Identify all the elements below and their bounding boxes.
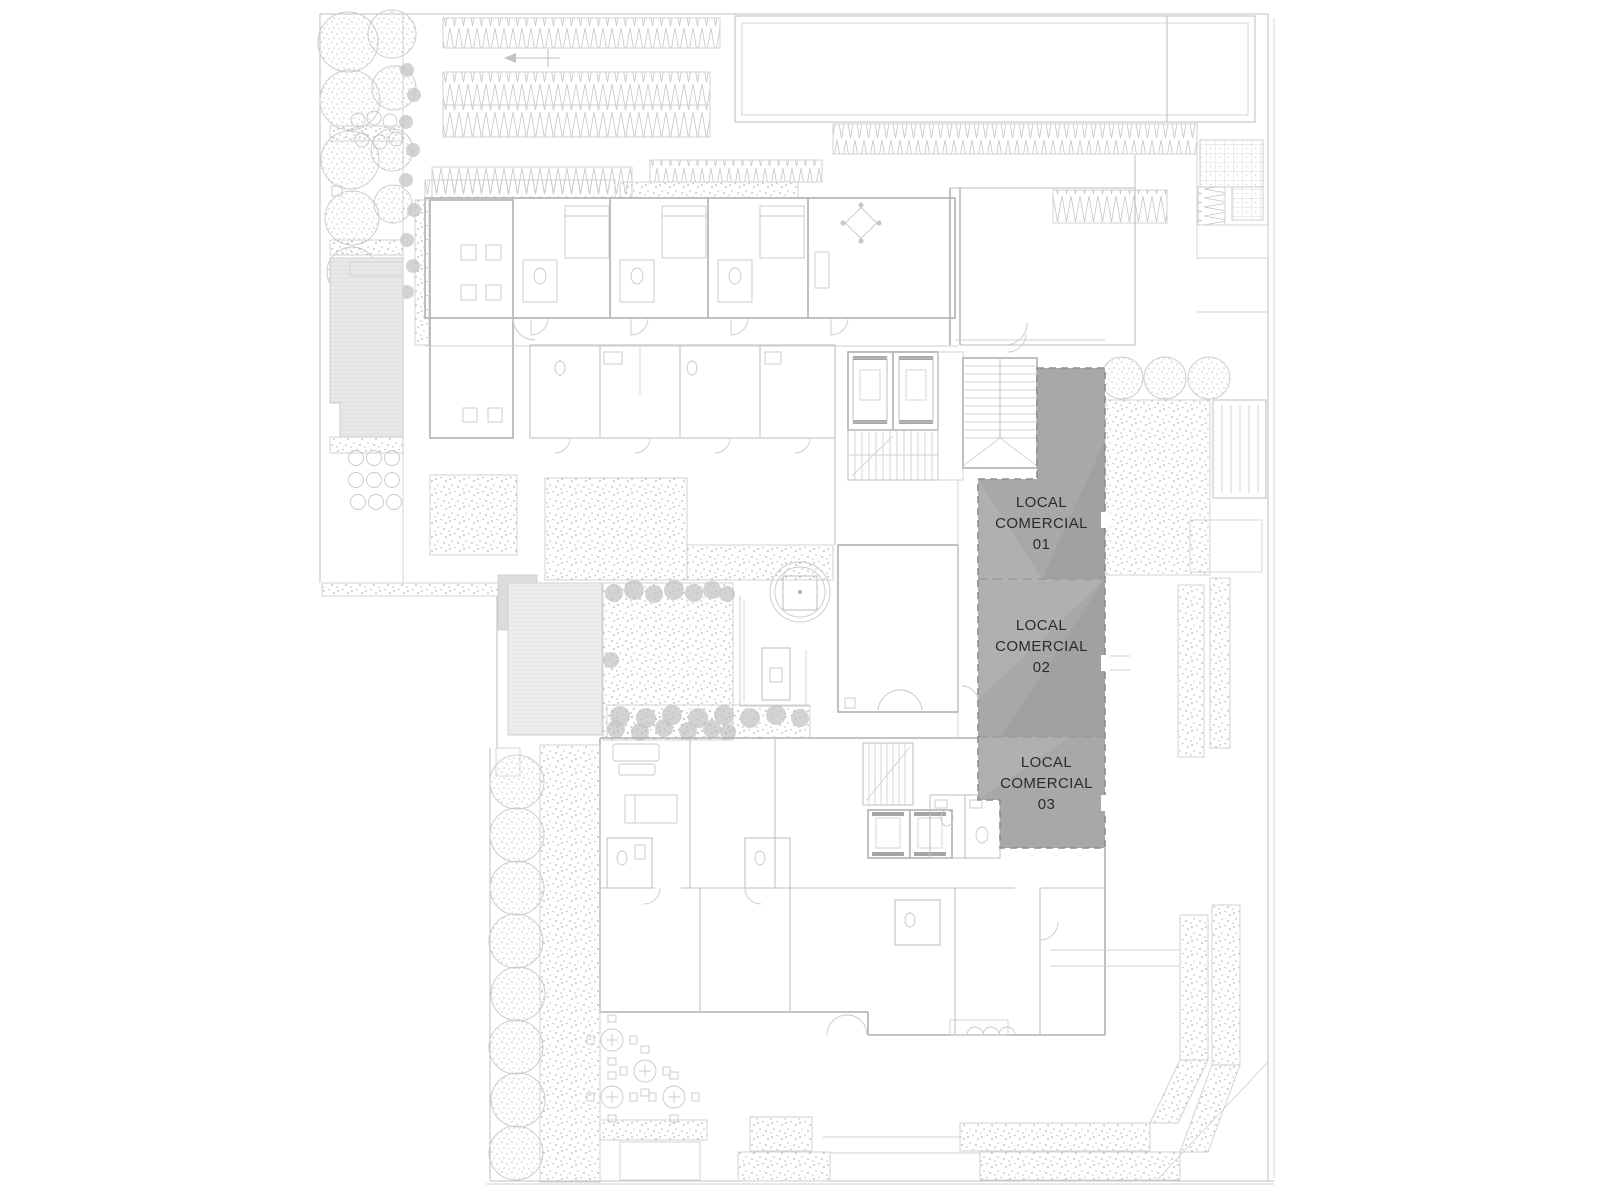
planting-strip <box>540 745 600 1182</box>
planting-bed <box>1105 400 1210 575</box>
tree-icon <box>368 10 416 58</box>
tree-icon <box>489 1020 543 1074</box>
tree-icon <box>374 185 412 223</box>
tree-icon <box>491 967 545 1021</box>
unit-label-line: COMERCIAL <box>988 773 1105 794</box>
parking-row <box>833 124 1197 154</box>
terrace <box>587 1015 699 1122</box>
tree-icon <box>1144 357 1186 399</box>
deck <box>1213 400 1266 498</box>
hedge-band <box>322 583 500 596</box>
cafe-table-icon <box>620 1046 670 1096</box>
planting-bed <box>430 475 517 555</box>
landscaping-northwest <box>318 10 421 510</box>
patio-deck <box>508 583 602 735</box>
planter-box <box>762 648 790 700</box>
planting-bed <box>687 545 833 580</box>
pool <box>330 258 403 437</box>
parking-row <box>1053 190 1167 223</box>
common-room <box>415 200 535 438</box>
parking-row <box>443 72 710 105</box>
courtyard <box>430 475 833 741</box>
bathrooms <box>607 795 1000 945</box>
parking-row <box>1198 187 1225 225</box>
southeast-walkways <box>960 905 1240 1180</box>
parking-row <box>443 105 710 137</box>
hedge-band <box>330 126 402 141</box>
unit-label-local-comercial-02[interactable]: LOCAL COMERCIAL 02 <box>978 615 1105 678</box>
tree-icon <box>1101 357 1143 399</box>
unit-label-line: 01 <box>978 534 1105 555</box>
tree-icon <box>325 191 379 245</box>
unit-label-local-comercial-03[interactable]: LOCAL COMERCIAL 03 <box>988 752 1105 815</box>
stairs-south <box>863 743 913 805</box>
planting-bed <box>545 478 687 580</box>
landscaping-east <box>1101 357 1266 757</box>
paved-grid <box>1232 187 1263 220</box>
planting-strip <box>600 1120 707 1140</box>
rooftop-structure <box>735 16 1255 122</box>
planter <box>750 1117 812 1151</box>
core-hall <box>938 352 963 480</box>
hedge-band <box>330 240 403 255</box>
parking-row <box>425 180 615 198</box>
unit-label-line: LOCAL <box>978 615 1105 636</box>
tree-icon <box>1188 357 1230 399</box>
lounger-circles <box>349 451 402 510</box>
hedge-band <box>620 182 798 198</box>
central-core <box>848 352 963 480</box>
apartment-interiors <box>523 203 882 303</box>
tree-icon <box>490 808 544 862</box>
bench <box>740 596 810 706</box>
tree-icon <box>490 861 544 915</box>
hedge-with-trees <box>607 705 810 738</box>
cafe-table-icon <box>649 1072 699 1122</box>
unit-label-line: 02 <box>978 657 1105 678</box>
unit-label-line: COMERCIAL <box>978 513 1105 534</box>
paved-grid <box>1200 140 1263 187</box>
parking-row <box>443 18 720 48</box>
unit-label-local-comercial-01[interactable]: LOCAL COMERCIAL 01 <box>978 492 1105 555</box>
apartment-doors <box>531 318 848 335</box>
furniture <box>613 744 677 823</box>
tree-icon <box>320 70 380 130</box>
lobby <box>838 479 978 737</box>
paved-step <box>620 1142 700 1180</box>
planter <box>738 1152 830 1181</box>
unit-label-line: LOCAL <box>988 752 1105 773</box>
unit-label-line: LOCAL <box>978 492 1105 513</box>
stairs-west <box>848 430 938 480</box>
planting-strip <box>1178 585 1204 757</box>
tree-icon <box>489 914 543 968</box>
unit-label-line: COMERCIAL <box>978 636 1105 657</box>
floor-plan-drawing <box>0 0 1600 1200</box>
unit-label-line: 03 <box>988 794 1105 815</box>
parking-row <box>650 160 822 182</box>
doors-south <box>644 888 1058 1035</box>
tree-icon <box>491 1073 545 1127</box>
floor-plan-page: LOCAL COMERCIAL 01 LOCAL COMERCIAL 02 LO… <box>0 0 1600 1200</box>
elevator-bank-south <box>868 810 952 858</box>
driveway-arrow-icon <box>504 49 560 67</box>
north-wing-apartments <box>415 180 1135 438</box>
planting-strip <box>1210 578 1230 748</box>
tree-icon <box>490 755 544 809</box>
tree-icon <box>489 1126 543 1180</box>
